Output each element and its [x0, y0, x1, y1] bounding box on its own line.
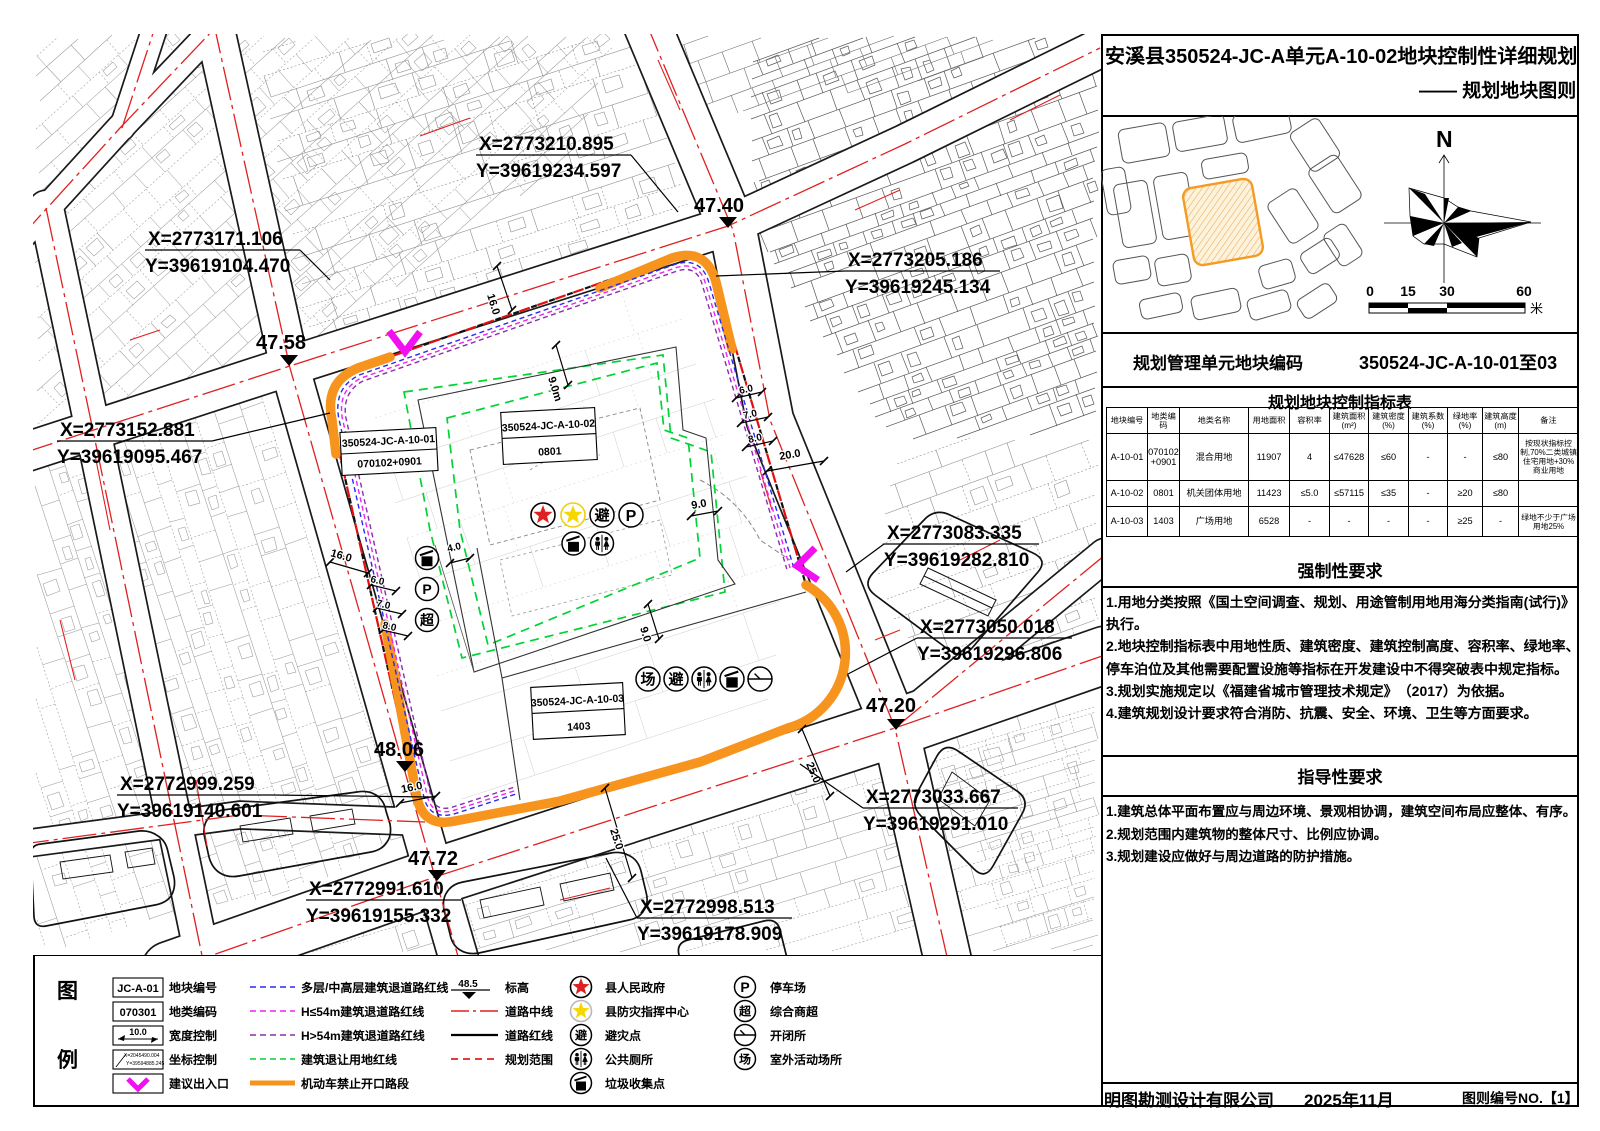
- svg-text:60: 60: [1516, 283, 1532, 299]
- svg-text:X=2773050.018: X=2773050.018: [920, 617, 1055, 638]
- svg-text:P: P: [626, 508, 637, 525]
- svg-text:JC-A-01: JC-A-01: [117, 983, 159, 995]
- svg-text:停车场: 停车场: [770, 981, 806, 995]
- svg-text:Y=39619178.909: Y=39619178.909: [637, 924, 782, 945]
- svg-text:Y=39619296.806: Y=39619296.806: [917, 644, 1062, 665]
- svg-text:0801: 0801: [538, 445, 562, 458]
- svg-text:标高: 标高: [504, 981, 529, 995]
- svg-text:坐标控制: 坐标控制: [169, 1053, 217, 1067]
- svg-text:48.5: 48.5: [458, 979, 478, 990]
- svg-text:Y=39619140.601: Y=39619140.601: [117, 801, 263, 822]
- svg-text:15: 15: [1400, 283, 1416, 299]
- svg-text:避: 避: [594, 506, 610, 524]
- svg-text:Y=39619104.470: Y=39619104.470: [145, 256, 290, 277]
- svg-text:X=2045490.004: X=2045490.004: [124, 1053, 160, 1059]
- svg-text:机动车禁止开口路段: 机动车禁止开口路段: [301, 1077, 410, 1091]
- svg-text:垃圾收集点: 垃圾收集点: [605, 1077, 665, 1091]
- svg-text:X=2772991.610: X=2772991.610: [309, 879, 444, 900]
- svg-text:图: 图: [57, 980, 78, 1003]
- svg-text:070301: 070301: [120, 1007, 157, 1019]
- svg-text:30: 30: [1439, 283, 1455, 299]
- svg-text:X=2773171.106: X=2773171.106: [148, 229, 283, 250]
- svg-text:47.20: 47.20: [866, 695, 916, 717]
- svg-text:X=2773152.881: X=2773152.881: [60, 420, 195, 441]
- svg-text:室外活动场所: 室外活动场所: [770, 1053, 842, 1067]
- svg-text:米: 米: [1530, 301, 1543, 316]
- svg-text:Y=39619282.810: Y=39619282.810: [884, 550, 1029, 571]
- svg-text:1403: 1403: [567, 720, 591, 733]
- svg-text:10.0: 10.0: [129, 1027, 147, 1037]
- svg-text:X=2773210.895: X=2773210.895: [479, 134, 614, 155]
- svg-text:Y=39619095.467: Y=39619095.467: [57, 447, 202, 468]
- svg-text:X=2772999.259: X=2772999.259: [120, 774, 255, 795]
- svg-text:X=2773033.667: X=2773033.667: [866, 787, 1001, 808]
- svg-text:道路红线: 道路红线: [505, 1029, 553, 1043]
- svg-text:47.58: 47.58: [256, 332, 306, 354]
- svg-text:X=2773205.186: X=2773205.186: [848, 250, 983, 271]
- svg-text:地类编码: 地类编码: [169, 1005, 217, 1019]
- svg-text:建议出入口: 建议出入口: [168, 1077, 229, 1091]
- svg-text:综合商超: 综合商超: [770, 1005, 819, 1019]
- svg-text:H>54m建筑退道路红线: H>54m建筑退道路红线: [301, 1029, 425, 1043]
- svg-text:X=2773083.335: X=2773083.335: [887, 523, 1022, 544]
- svg-text:0: 0: [1366, 283, 1374, 299]
- svg-text:47.72: 47.72: [408, 848, 458, 870]
- svg-text:Y=39619155.332: Y=39619155.332: [306, 906, 451, 927]
- svg-text:例: 例: [57, 1048, 78, 1072]
- svg-text:超: 超: [738, 1004, 752, 1018]
- svg-text:地块编号: 地块编号: [169, 981, 217, 995]
- svg-text:避: 避: [575, 1028, 587, 1042]
- svg-text:开闭所: 开闭所: [770, 1029, 806, 1043]
- svg-text:宽度控制: 宽度控制: [168, 1029, 217, 1043]
- svg-text:县人民政府: 县人民政府: [605, 981, 665, 995]
- svg-text:47.40: 47.40: [694, 195, 744, 217]
- svg-text:县防灾指挥中心: 县防灾指挥中心: [605, 1005, 689, 1019]
- svg-text:N: N: [1436, 126, 1453, 152]
- svg-text:Y=39619234.597: Y=39619234.597: [476, 161, 621, 182]
- svg-text:Y=39619245.134: Y=39619245.134: [845, 277, 991, 298]
- svg-text:P: P: [422, 581, 431, 597]
- svg-text:避: 避: [668, 670, 684, 688]
- svg-text:公共厕所: 公共厕所: [605, 1053, 653, 1067]
- svg-text:场: 场: [640, 671, 655, 688]
- svg-text:避灾点: 避灾点: [605, 1029, 641, 1043]
- svg-text:48.06: 48.06: [374, 739, 424, 761]
- svg-text:P: P: [740, 979, 749, 995]
- svg-text:规划范围: 规划范围: [505, 1053, 553, 1067]
- svg-text:Y=39619291.010: Y=39619291.010: [863, 814, 1008, 835]
- svg-text:Y=39594885.245: Y=39594885.245: [126, 1061, 164, 1067]
- svg-text:H≤54m建筑退道路红线: H≤54m建筑退道路红线: [301, 1005, 424, 1019]
- svg-text:多层/中高层建筑退道路红线: 多层/中高层建筑退道路红线: [301, 981, 448, 995]
- svg-text:超: 超: [419, 612, 435, 628]
- svg-text:X=2772998.513: X=2772998.513: [640, 897, 775, 918]
- svg-text:建筑退让用地红线: 建筑退让用地红线: [300, 1053, 397, 1067]
- svg-text:道路中线: 道路中线: [505, 1005, 553, 1019]
- svg-text:场: 场: [739, 1052, 751, 1066]
